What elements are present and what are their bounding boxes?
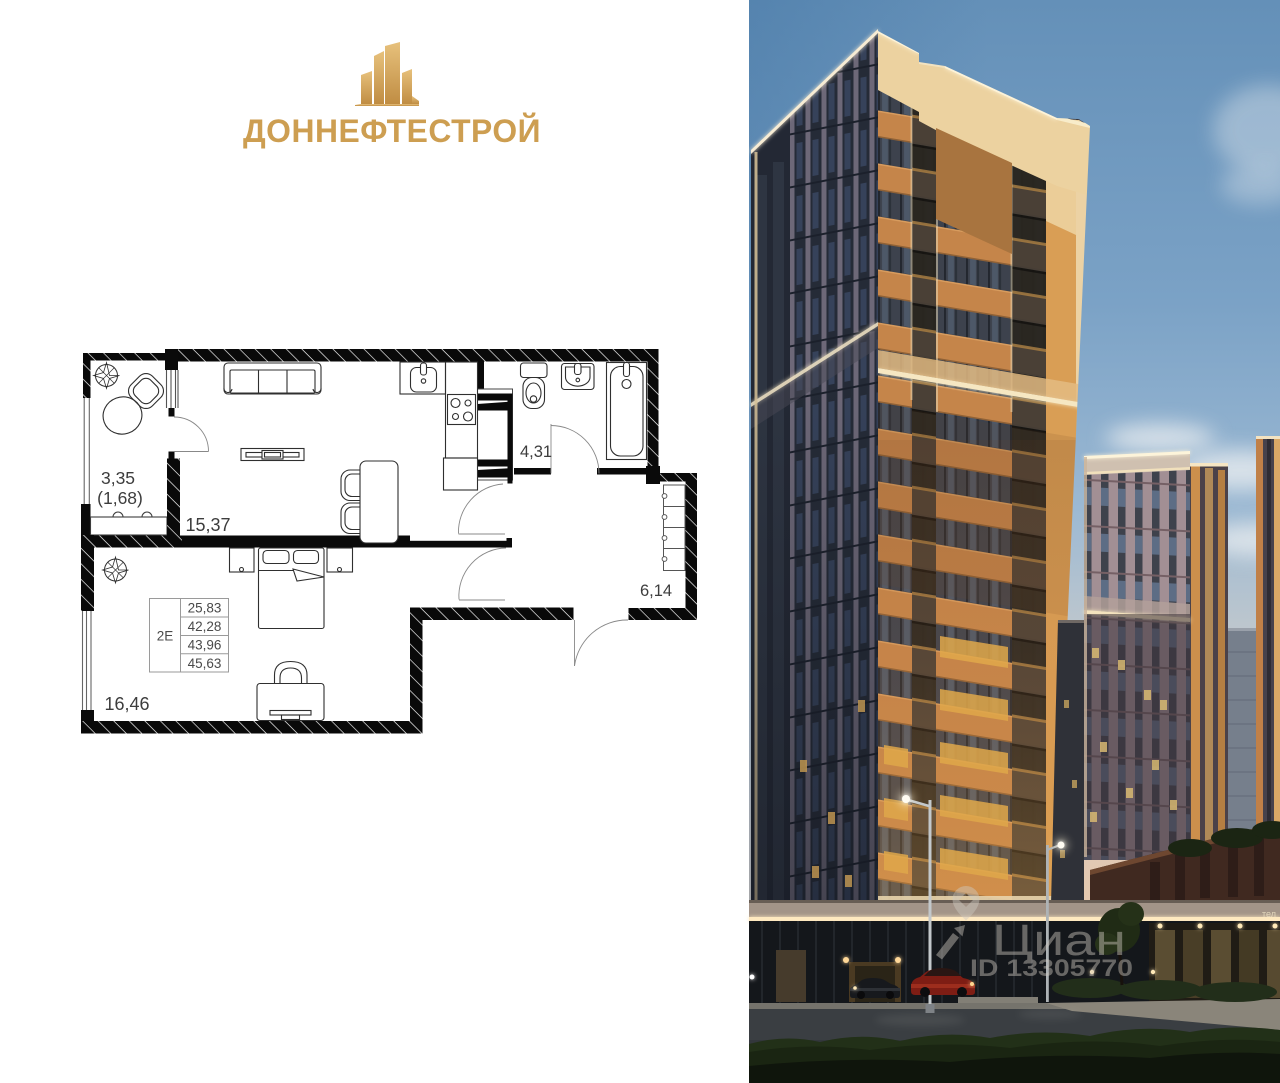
svg-text:42,28: 42,28 (188, 619, 222, 634)
svg-text:25,83: 25,83 (188, 601, 222, 616)
svg-text:4,31: 4,31 (520, 443, 552, 461)
svg-text:(1,68): (1,68) (97, 488, 143, 508)
svg-text:тел: тел (1262, 909, 1276, 919)
svg-text:6,14: 6,14 (640, 582, 672, 600)
svg-text:15,37: 15,37 (185, 515, 230, 535)
svg-text:16,46: 16,46 (104, 694, 149, 714)
svg-text:3,35: 3,35 (101, 468, 135, 488)
svg-text:43,96: 43,96 (188, 638, 222, 653)
svg-text:ID 13305770: ID 13305770 (970, 955, 1133, 982)
svg-text:45,63: 45,63 (188, 656, 222, 671)
svg-text:ДОННЕФТЕСТРОЙ: ДОННЕФТЕСТРОЙ (243, 113, 541, 149)
svg-text:2Е: 2Е (157, 629, 174, 644)
